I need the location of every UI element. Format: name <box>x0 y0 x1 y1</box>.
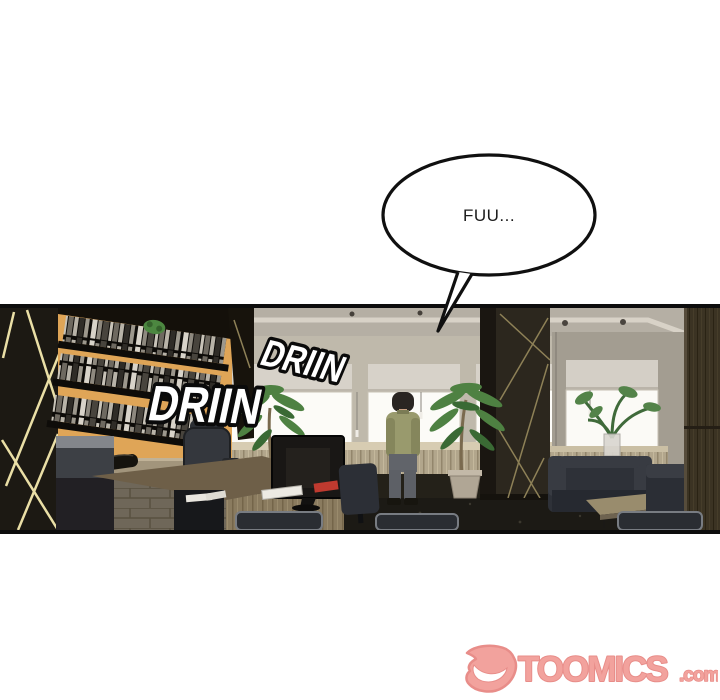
comic-panel: DRIIN DRIIN <box>0 304 720 534</box>
wood-cabinet <box>684 308 720 530</box>
speech-bubble: FUU... <box>370 148 610 340</box>
comic-page: DRIIN DRIIN FUU... TOOMICS .com <box>0 0 720 700</box>
sfx-driin-1: DRIIN <box>144 375 267 435</box>
toomics-logo[interactable]: TOOMICS .com <box>460 640 718 694</box>
speech-bubble-text: FUU... <box>463 206 515 225</box>
side-desk <box>56 436 114 530</box>
speech-bubble-tail <box>438 272 472 331</box>
panel-artwork: DRIIN DRIIN <box>0 308 720 530</box>
toomics-logo-text: TOOMICS <box>518 650 667 689</box>
ceiling-light <box>350 312 355 317</box>
ceiling-light <box>620 319 626 325</box>
toomics-mascot-icon <box>466 646 515 692</box>
man-shoes <box>387 498 401 505</box>
toomics-logo-suffix: .com <box>679 665 718 686</box>
man-pants <box>389 454 417 472</box>
